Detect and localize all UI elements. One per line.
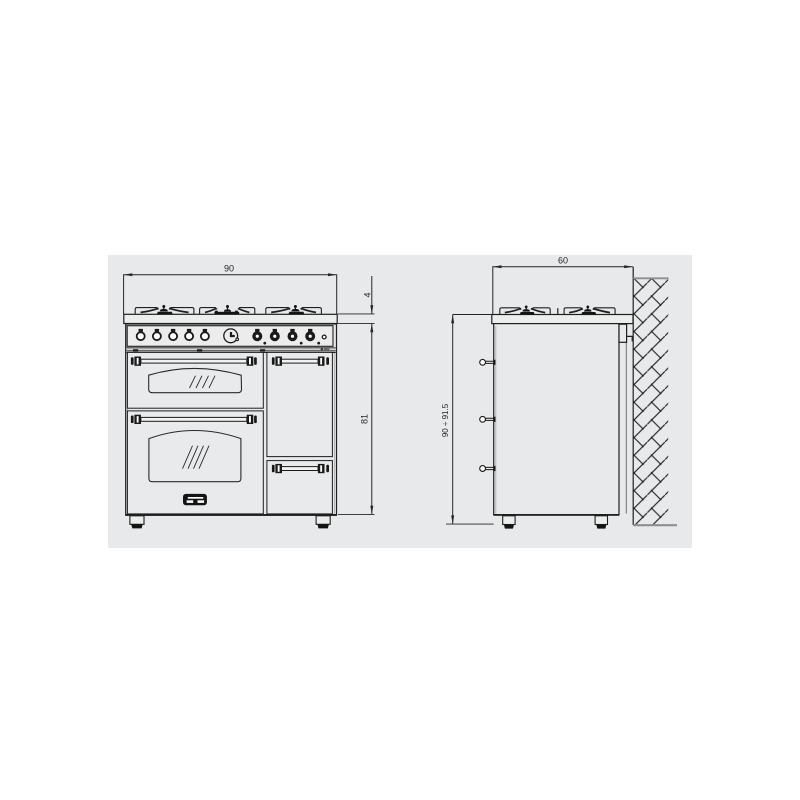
svg-text:90 ÷ 91.5: 90 ÷ 91.5	[441, 403, 450, 437]
svg-text:90: 90	[224, 264, 234, 274]
svg-text:60: 60	[558, 256, 568, 266]
svg-text:81: 81	[360, 414, 370, 424]
svg-text:4: 4	[363, 292, 373, 297]
